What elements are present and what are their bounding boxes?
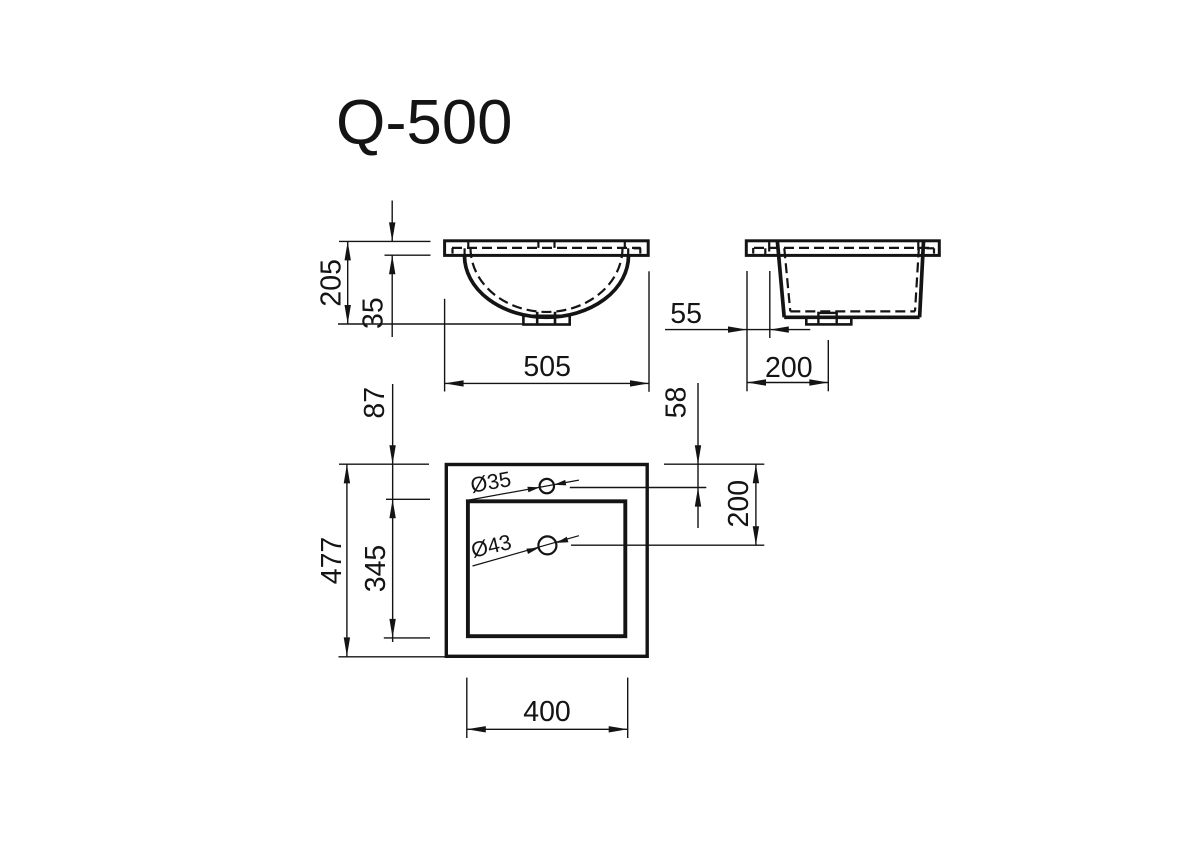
svg-text:35: 35 <box>358 297 390 329</box>
svg-text:87: 87 <box>359 387 391 419</box>
svg-text:205: 205 <box>315 259 347 307</box>
svg-text:477: 477 <box>316 537 348 585</box>
svg-text:400: 400 <box>523 696 571 728</box>
svg-text:Q-500: Q-500 <box>336 88 513 158</box>
svg-text:58: 58 <box>660 387 692 419</box>
svg-text:345: 345 <box>360 545 392 593</box>
svg-text:200: 200 <box>765 352 813 384</box>
svg-text:505: 505 <box>523 351 571 383</box>
svg-text:55: 55 <box>670 298 702 330</box>
svg-text:200: 200 <box>723 480 755 528</box>
